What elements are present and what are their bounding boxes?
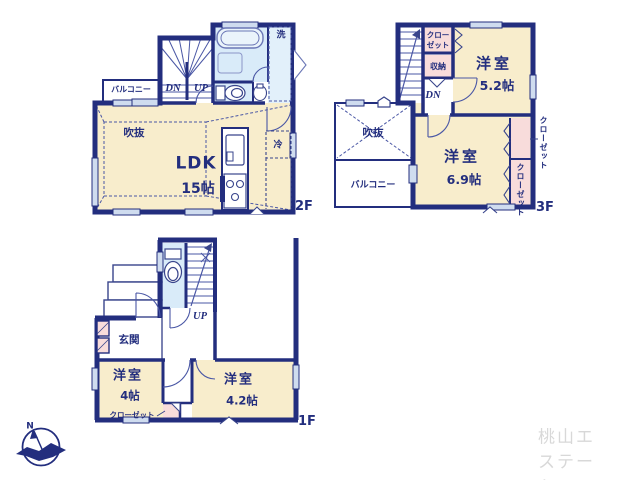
stairs-up-label-2f: UP: [194, 84, 208, 95]
floorplan-page: LDK 15帖 吹抜 バルコニー 洗 冷 DN UP 2F 洋室 5.2帖 洋室…: [0, 0, 640, 480]
room-label-3f-b: 洋室: [444, 150, 480, 165]
void-label-2f: 吹抜: [124, 128, 145, 139]
toilet-1f: [165, 249, 182, 283]
washroom-label: 洗: [276, 32, 285, 41]
closet-label-1f: クローゼット: [110, 411, 155, 419]
floorplan-drawing: [0, 0, 640, 480]
stairs-dn-label-2f: DN: [165, 84, 180, 95]
void-top-marker: [378, 97, 390, 107]
room-label-3f-a: 洋室: [476, 57, 512, 72]
room-size-ldk: 15帖: [181, 182, 214, 196]
room-size-3f-a: 5.2帖: [480, 80, 515, 93]
void-label-3f: 吹抜: [363, 128, 384, 139]
floor-label-3f: 3F: [536, 201, 554, 214]
entrance-label: 玄関: [119, 335, 140, 346]
compass-north-label: N: [26, 423, 34, 432]
entrance-steps: [104, 265, 162, 317]
closet-label-top-l1: クロー: [427, 31, 450, 39]
storage-label: 収納: [430, 63, 446, 71]
fridge-label: 冷: [273, 142, 282, 151]
balcony-label-2f: バルコニー: [111, 86, 151, 94]
compass-icon: [16, 429, 66, 466]
room-label-1f-b: 洋室: [224, 374, 254, 387]
closet-label-right-outer: クローゼット: [539, 116, 547, 170]
room-size-1f-a: 4帖: [120, 390, 140, 402]
floor-label-1f: 1F: [298, 415, 316, 428]
wash-door-leaf: [294, 50, 306, 80]
closet-label-right-inner: クローゼット: [516, 163, 524, 217]
watermark: 桃山エステート: [538, 423, 606, 480]
toilet-2f: [216, 86, 245, 101]
room-size-3f-b: 6.9帖: [447, 174, 482, 187]
room-label-1f-a: 洋室: [113, 370, 143, 383]
stairs-dn-label-3f: DN: [425, 91, 440, 102]
kitchen-counter: [220, 128, 248, 210]
closet-label-top-l2: ゼット: [427, 41, 450, 49]
balcony-label-3f: バルコニー: [351, 182, 396, 191]
stairs-up-label-1f: UP: [193, 312, 207, 323]
room-size-1f-b: 4.2帖: [226, 395, 258, 407]
floor-label-2f: 2F: [295, 200, 313, 213]
room-label-ldk: LDK: [175, 156, 216, 173]
